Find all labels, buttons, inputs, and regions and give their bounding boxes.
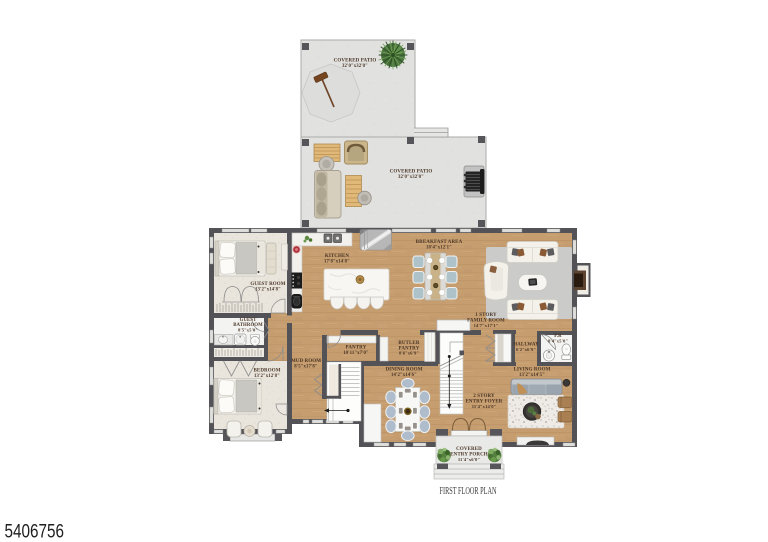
svg-text:COVERED PATIO: COVERED PATIO [334,59,377,64]
svg-text:GUEST ROOM: GUEST ROOM [250,282,285,287]
svg-text:32'0"x32'0": 32'0"x32'0" [398,175,424,180]
svg-text:14'7"x17'1": 14'7"x17'1" [474,323,499,328]
svg-text:BREAKFAST AREA: BREAKFAST AREA [416,240,463,245]
svg-text:14'2"x14'6": 14'2"x14'6" [391,373,417,378]
svg-text:18'4"x12'1": 18'4"x12'1" [426,245,452,250]
svg-text:13'2"x14'5": 13'2"x14'5" [519,373,545,378]
svg-text:COVERED PATIO: COVERED PATIO [390,170,433,175]
svg-text:PANTRY: PANTRY [346,346,367,351]
svg-text:KITCHEN: KITCHEN [325,254,350,259]
svg-text:DINING ROOM: DINING ROOM [385,368,422,373]
svg-text:11'4"x14'0": 11'4"x14'0" [472,404,497,409]
svg-text:MUD ROOM: MUD ROOM [291,359,321,364]
svg-text:5406756: 5406756 [5,521,65,542]
svg-text:13'2"x12'8": 13'2"x12'8" [254,374,280,379]
svg-text:13'2"x14'8": 13'2"x14'8" [255,288,281,293]
svg-text:2 STORY: 2 STORY [473,394,495,399]
svg-text:BEDROOM: BEDROOM [253,369,280,374]
svg-text:10'11"x7'0": 10'11"x7'0" [343,351,369,356]
svg-text:17'8"x14'8": 17'8"x14'8" [324,260,350,265]
svg-text:FIRST FLOOR PLAN: FIRST FLOOR PLAN [440,486,497,497]
svg-text:COVERED: COVERED [456,447,482,452]
svg-text:8'5"x5'0": 8'5"x5'0" [238,327,258,332]
svg-text:BUTLER: BUTLER [398,341,419,346]
svg-text:11'4"x6'0": 11'4"x6'0" [458,457,481,462]
svg-text:8'6"x6'9": 8'6"x6'9" [399,351,419,356]
svg-text:32'0"x32'0": 32'0"x32'0" [342,64,368,69]
svg-text:8'4"x5'0": 8'4"x5'0" [548,338,568,343]
svg-text:LIVING ROOM: LIVING ROOM [514,368,551,373]
svg-text:8'5"x17'8": 8'5"x17'8" [294,365,318,370]
svg-text:1 STORY: 1 STORY [475,313,497,318]
svg-text:6'2"x6'9": 6'2"x6'9" [516,347,536,352]
